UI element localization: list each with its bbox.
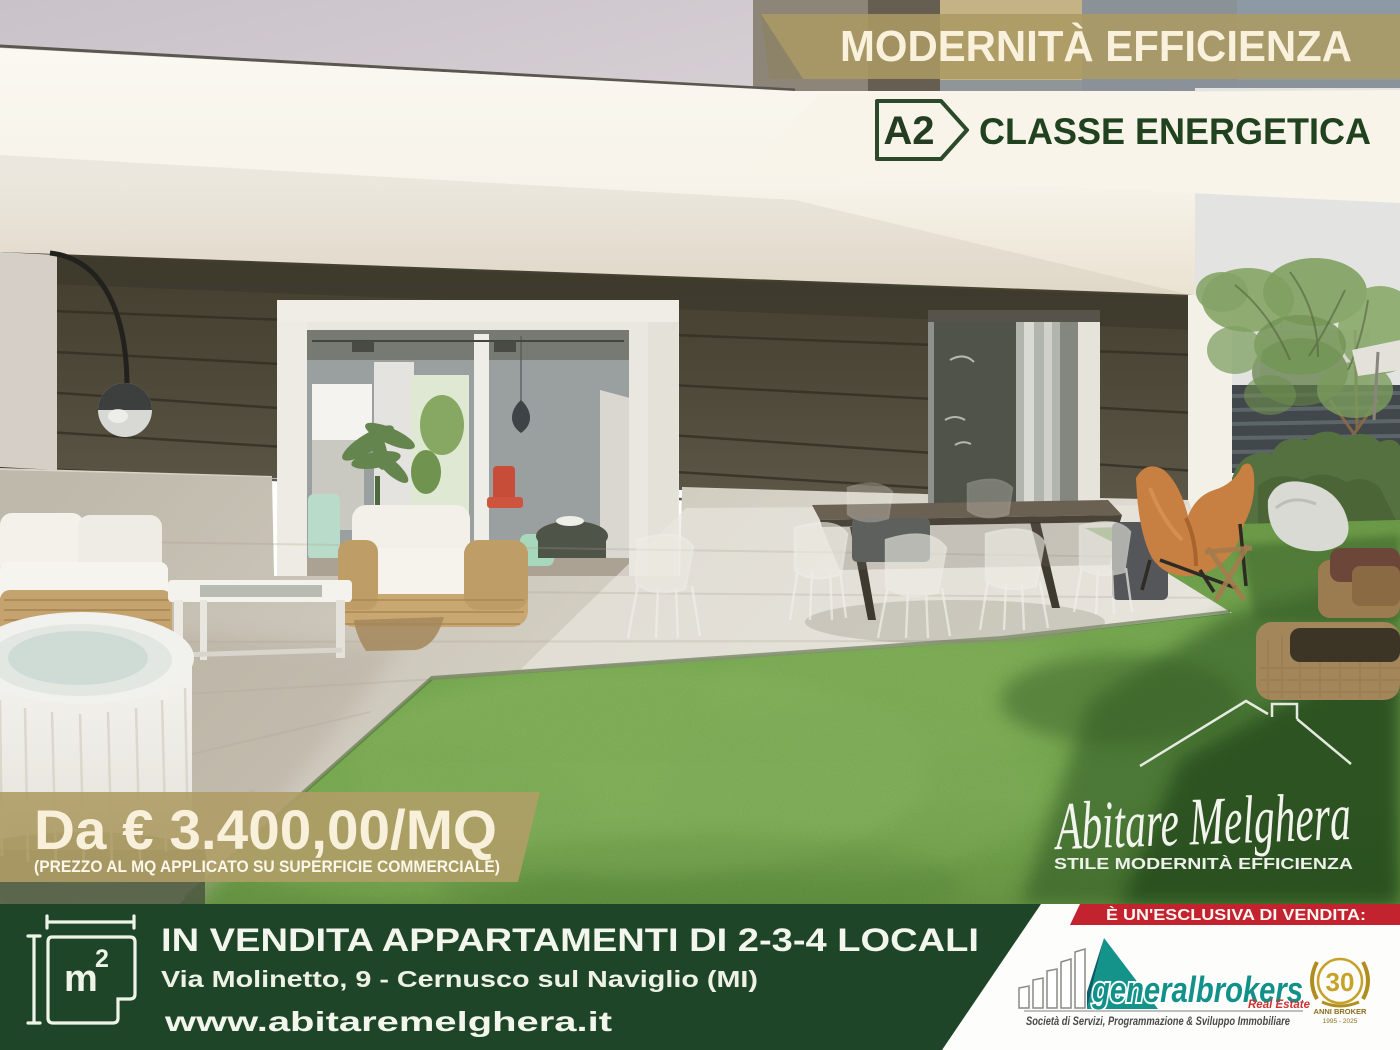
svg-text:1995 - 2025: 1995 - 2025 [1323,1018,1358,1025]
svg-text:CLASSE ENERGETICA: CLASSE ENERGETICA [979,111,1371,152]
svg-text:IN VENDITA APPARTAMENTI DI 2-: IN VENDITA APPARTAMENTI DI 2-3-4 LOCALI [161,922,979,958]
svg-text:È UN'ESCLUSIVA DI VENDITA:: È UN'ESCLUSIVA DI VENDITA: [1106,907,1366,924]
svg-text:MODERNITÀ EFFICIENZA: MODERNITÀ EFFICIENZA [840,21,1352,71]
svg-text:STILE MODERNITÀ EFFICIENZA: STILE MODERNITÀ EFFICIENZA [1054,856,1353,873]
svg-text:Società di Servizi, Programmaz: Società di Servizi, Programmazione & Svi… [1026,1016,1290,1028]
svg-text:Abitare Melghera: Abitare Melghera [1052,778,1352,864]
svg-text:(PREZZO AL MQ APPLICATO SU SUP: (PREZZO AL MQ APPLICATO SU SUPERFICIE CO… [34,858,500,876]
svg-text:Real Estate: Real Estate [1248,999,1311,1011]
svg-text:www.abitaremelghera.it: www.abitaremelghera.it [164,1006,612,1037]
svg-text:m: m [64,958,98,1000]
svg-text:A2: A2 [883,109,934,153]
svg-text:30: 30 [1326,967,1355,997]
svg-text:Via Molinetto, 9 - Cernusco su: Via Molinetto, 9 - Cernusco sul Naviglio… [161,966,758,992]
svg-text:2: 2 [95,945,109,973]
svg-text:ANNI BROKER: ANNI BROKER [1314,1007,1368,1016]
svg-text:Da € 3.400,00/MQ: Da € 3.400,00/MQ [34,798,497,861]
